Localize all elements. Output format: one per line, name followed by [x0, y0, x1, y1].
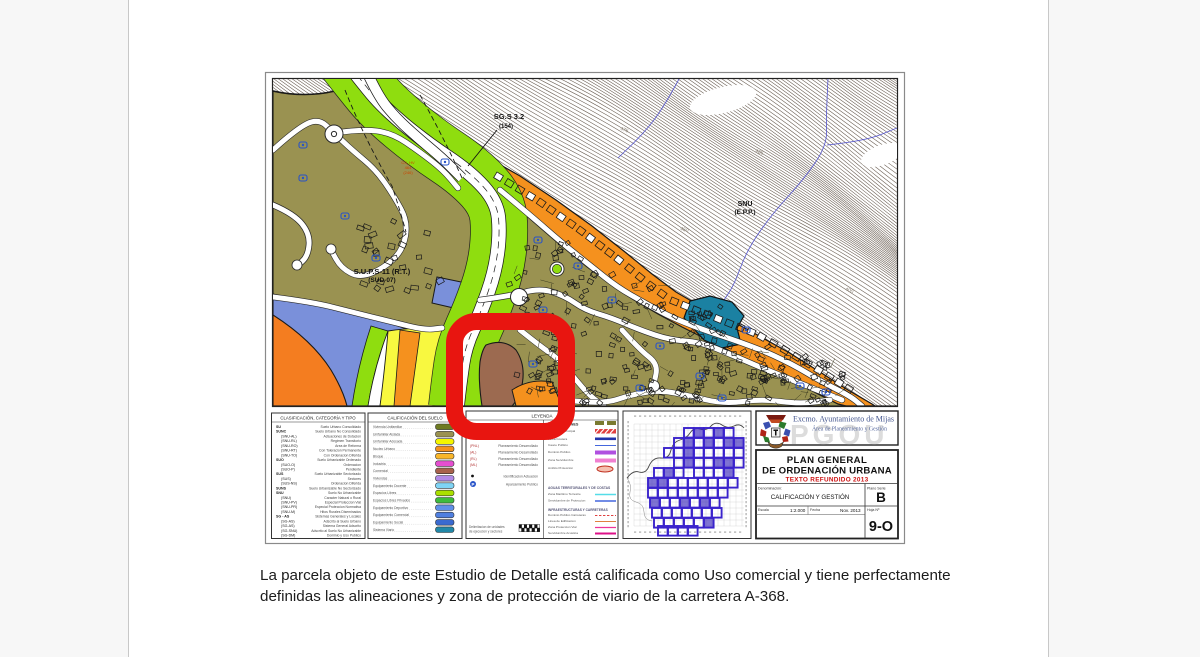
svg-text:Delimitacion de unidades: Delimitacion de unidades — [469, 525, 505, 529]
svg-text:Planeamiento Desarrollado: Planeamiento Desarrollado — [498, 450, 538, 454]
svg-text:Nucleo Urbano: Nucleo Urbano — [373, 447, 395, 451]
svg-text:Suelo Urbano Consolidado: Suelo Urbano Consolidado — [320, 425, 361, 429]
svg-text:(SUD-07): (SUD-07) — [368, 277, 395, 284]
svg-text:(SG-SNU): (SG-SNU) — [281, 529, 297, 533]
svg-text:B: B — [876, 490, 886, 505]
svg-text:Viviendas: Viviendas — [373, 477, 388, 481]
svg-text:Equipamiento Comercial: Equipamiento Comercial — [373, 513, 409, 517]
svg-text:Con Ordenacion Diferida: Con Ordenacion Diferida — [324, 453, 361, 457]
svg-text:AGUAS TERRITORIALES Y DE COSTA: AGUAS TERRITORIALES Y DE COSTAS — [548, 486, 611, 490]
svg-text:1:2.000: 1:2.000 — [790, 508, 806, 513]
svg-text:(SUS): (SUS) — [281, 477, 291, 481]
svg-text:Industria: Industria — [373, 462, 386, 466]
svg-text:SUNC: SUNC — [276, 430, 287, 434]
svg-text:Pendiente: Pendiente — [346, 468, 361, 472]
svg-text:(SG-DM): (SG-DM) — [281, 534, 295, 538]
svg-text:Suelo Urbanizable Sectorizado: Suelo Urbanizable Sectorizado — [314, 472, 361, 476]
svg-text:Suelo Urbanizable No Sectoriza: Suelo Urbanizable No Sectorizado — [309, 486, 361, 490]
svg-text:Espacios Libres Privados: Espacios Libres Privados — [373, 499, 410, 503]
svg-text:(246): (246) — [403, 170, 413, 175]
svg-text:PLAN GENERAL: PLAN GENERAL — [787, 455, 868, 466]
svg-text:Regimen Transitorio: Regimen Transitorio — [331, 439, 361, 443]
svg-text:Unifamiliar Aislada: Unifamiliar Aislada — [373, 432, 400, 436]
svg-text:(SNU-RT): (SNU-RT) — [281, 449, 297, 453]
svg-text:(AL): (AL) — [470, 450, 476, 454]
svg-text:Hitos Rurales Diseminados: Hitos Rurales Diseminados — [320, 510, 361, 514]
svg-text:Dominio Publico Carreteras: Dominio Publico Carreteras — [548, 513, 586, 517]
svg-text:Nov. 2013: Nov. 2013 — [840, 508, 861, 513]
svg-text:Sistema General Adscrito: Sistema General Adscrito — [323, 524, 361, 528]
svg-text:(154): (154) — [499, 124, 513, 130]
svg-text:Fecha: Fecha — [810, 508, 820, 512]
svg-text:Planeamiento Desarrollado: Planeamiento Desarrollado — [498, 444, 538, 448]
svg-text:Caracter Natural o Rural: Caracter Natural o Rural — [324, 496, 361, 500]
svg-text:CLASIFICACIÓN, CATEGORÍA Y TIP: CLASIFICACIÓN, CATEGORÍA Y TIPO — [280, 416, 356, 421]
svg-text:(ML): (ML) — [470, 463, 477, 467]
svg-text:Comercial: Comercial — [373, 469, 388, 473]
svg-text:Servidumbre de Proteccion: Servidumbre de Proteccion — [548, 499, 586, 503]
svg-text:P: P — [472, 482, 475, 487]
svg-text:SUNS: SUNS — [276, 486, 287, 490]
svg-text:LEYENDA: LEYENDA — [531, 414, 552, 419]
svg-text:Bloque: Bloque — [373, 454, 383, 458]
svg-text:Equipamiento Docente: Equipamiento Docente — [373, 484, 407, 488]
svg-text:(SNU-M): (SNU-M) — [281, 510, 295, 514]
svg-text:Actuaciones de Dotacion: Actuaciones de Dotacion — [323, 434, 361, 438]
svg-text:(RL): (RL) — [470, 457, 477, 461]
svg-text:CALIFICACIÓN DEL SUELO: CALIFICACIÓN DEL SUELO — [387, 416, 443, 421]
svg-text:PGOU: PGOU — [790, 419, 888, 450]
svg-text:Especial Proteccion Vial: Especial Proteccion Vial — [325, 501, 362, 505]
svg-text:Adscrito al Suelo No Urbanizab: Adscrito al Suelo No Urbanizable — [311, 529, 361, 533]
svg-text:Hoja Nº: Hoja Nº — [867, 508, 880, 512]
svg-text:(SNU-AL): (SNU-AL) — [281, 434, 297, 438]
svg-text:Vivienda Unifamiliar: Vivienda Unifamiliar — [373, 425, 403, 429]
svg-text:Suelo No Urbanizable: Suelo No Urbanizable — [328, 491, 361, 495]
svg-text:Planeamiento Desarrollado: Planeamiento Desarrollado — [498, 463, 538, 467]
svg-text:Suelo Urbanizable Ordenado: Suelo Urbanizable Ordenado — [317, 458, 361, 462]
svg-text:(SNU): (SNU) — [281, 496, 291, 500]
svg-text:CALIFICACIÓN Y GESTIÓN: CALIFICACIÓN Y GESTIÓN — [771, 494, 850, 501]
svg-text:Con Toleracion Permanente: Con Toleracion Permanente — [319, 449, 361, 453]
svg-text:(SNU-PR): (SNU-PR) — [281, 505, 297, 509]
svg-text:Área de Planeamiento y Gestión: Área de Planeamiento y Gestión — [812, 425, 887, 433]
svg-text:Ordenacion: Ordenacion — [343, 463, 361, 467]
svg-text:Sectores: Sectores — [348, 477, 362, 481]
svg-text:(SG-AS): (SG-AS) — [281, 524, 295, 528]
svg-text:(SUS-NS): (SUS-NS) — [281, 482, 297, 486]
svg-text:Equipamiento Deportivo: Equipamiento Deportivo — [373, 506, 408, 510]
svg-text:(E.P.P.): (E.P.P.) — [734, 209, 755, 216]
svg-text:Sistema Viario: Sistema Viario — [373, 528, 394, 532]
svg-text:DE ORDENACIÓN URBANA: DE ORDENACIÓN URBANA — [762, 465, 892, 477]
svg-text:Linea de Edificacion: Linea de Edificacion — [548, 519, 576, 523]
svg-text:SU: SU — [276, 425, 281, 429]
svg-text:Servidumbre Acustica: Servidumbre Acustica — [548, 531, 578, 535]
svg-text:(SUO-O): (SUO-O) — [281, 463, 295, 467]
svg-text:de ejecucion y sectores: de ejecucion y sectores — [469, 530, 503, 534]
svg-text:(PNL): (PNL) — [470, 444, 479, 448]
svg-text:INFRAESTRUCTURAS Y CARRETERAS: INFRAESTRUCTURAS Y CARRETERAS — [548, 508, 608, 512]
svg-text:SUO: SUO — [276, 458, 284, 462]
svg-text:Zona Maritimo Terrestre: Zona Maritimo Terrestre — [548, 492, 581, 496]
svg-text:Dominio Publico: Dominio Publico — [548, 450, 571, 454]
svg-text:S.U.P.S-11 (R.T.): S.U.P.S-11 (R.T.) — [354, 267, 411, 276]
svg-text:Equipamiento Social: Equipamiento Social — [373, 521, 403, 525]
svg-text:Especial Proteccion Normativa: Especial Proteccion Normativa — [315, 505, 361, 509]
svg-text:Area de Reforma: Area de Reforma — [335, 444, 361, 448]
svg-text:Dominio y Uso Publico: Dominio y Uso Publico — [327, 534, 361, 538]
svg-text:Identificacion Actuacion: Identificacion Actuacion — [504, 475, 539, 479]
svg-text:Adscrito al Suelo Urbano: Adscrito al Suelo Urbano — [323, 519, 361, 523]
svg-text:SUS: SUS — [276, 472, 284, 476]
svg-text:Planeamiento Desarrollado: Planeamiento Desarrollado — [498, 457, 538, 461]
svg-text:(SNU-TO): (SNU-TO) — [281, 453, 297, 457]
svg-text:Escala: Escala — [758, 508, 769, 512]
svg-text:Sistemas Generales y Locales: Sistemas Generales y Locales — [315, 515, 361, 519]
svg-text:TEXTO REFUNDIDO 2013: TEXTO REFUNDIDO 2013 — [786, 477, 869, 484]
svg-text:SNU: SNU — [276, 491, 284, 495]
svg-text:Unifamiliar Adosada: Unifamiliar Adosada — [373, 440, 402, 444]
svg-text:(SNU-RO): (SNU-RO) — [281, 444, 298, 448]
svg-text:Zona Servidumbre: Zona Servidumbre — [548, 458, 574, 462]
svg-text:Ambito Proteccion: Ambito Proteccion — [548, 466, 573, 470]
svg-text:Excmo. Ayuntamiento de Mijas: Excmo. Ayuntamiento de Mijas — [793, 415, 894, 424]
svg-text:9-O: 9-O — [869, 519, 893, 535]
svg-text:Suelo Urbano No Consolidado: Suelo Urbano No Consolidado — [315, 430, 361, 434]
svg-text:Ordenacion Diferida: Ordenacion Diferida — [331, 482, 361, 486]
svg-text:SG.S 3.2: SG.S 3.2 — [494, 112, 524, 121]
svg-text:Denominación:: Denominación: — [758, 487, 782, 491]
svg-text:Aparcamiento Publico: Aparcamiento Publico — [506, 483, 538, 487]
svg-text:SG - AS: SG - AS — [276, 515, 290, 519]
svg-text:(SNU-PV): (SNU-PV) — [281, 501, 297, 505]
svg-text:Cauce Publico: Cauce Publico — [548, 443, 568, 447]
svg-text:Zona Proteccion Vial: Zona Proteccion Vial — [548, 525, 577, 529]
svg-text:SNU: SNU — [738, 201, 753, 208]
svg-text:Espacios Libres: Espacios Libres — [373, 491, 397, 495]
svg-text:(SNU-RL): (SNU-RL) — [281, 439, 297, 443]
svg-text:(SG-AS): (SG-AS) — [281, 519, 295, 523]
svg-text:(SUO-P): (SUO-P) — [281, 468, 295, 472]
